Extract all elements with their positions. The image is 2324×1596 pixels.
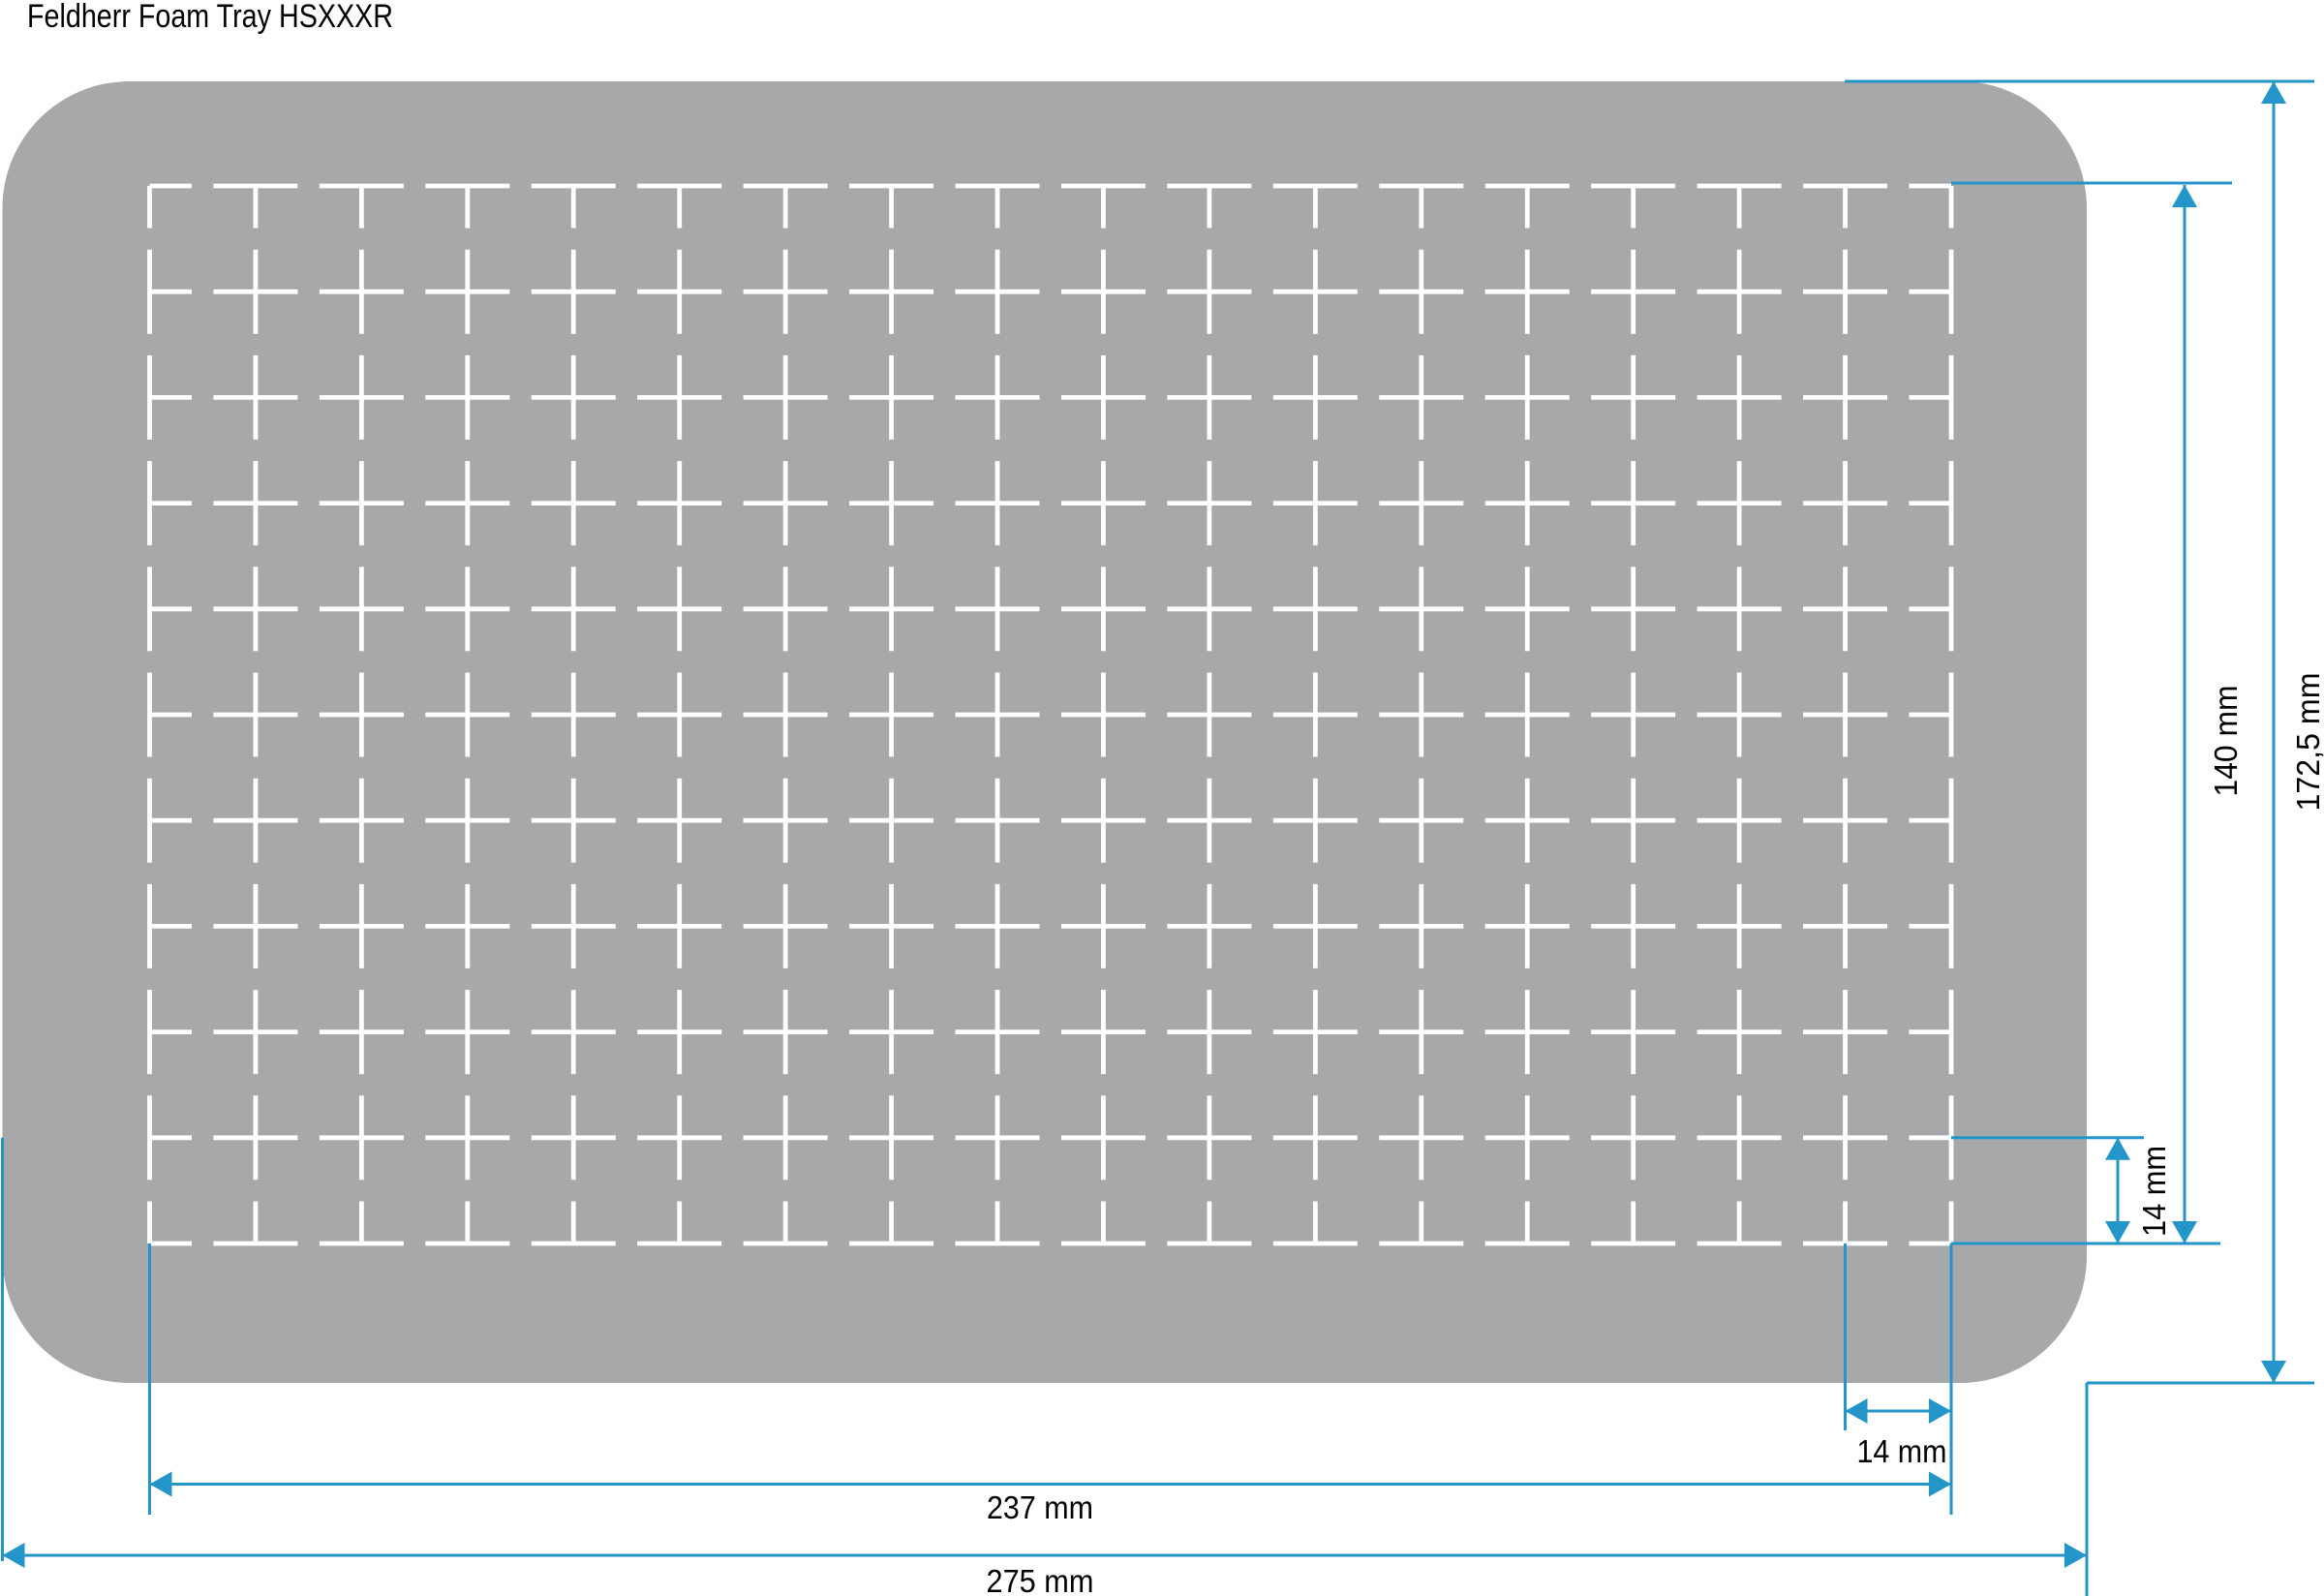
- svg-text:237 mm: 237 mm: [987, 1489, 1093, 1525]
- svg-text:140 mm: 140 mm: [2208, 686, 2244, 797]
- svg-text:172,5 mm: 172,5 mm: [2290, 673, 2324, 812]
- svg-text:14 mm: 14 mm: [2136, 1146, 2172, 1237]
- svg-text:Feldherr Foam Tray HSXXXR: Feldherr Foam Tray HSXXXR: [27, 0, 393, 35]
- svg-text:14 mm: 14 mm: [1857, 1433, 1947, 1469]
- svg-text:275 mm: 275 mm: [987, 1563, 1094, 1596]
